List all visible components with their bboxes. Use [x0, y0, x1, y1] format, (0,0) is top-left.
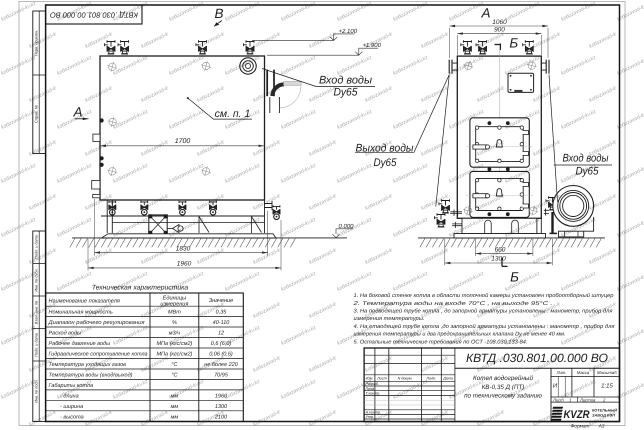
svg-text:Гидравлическое сопротивление к: Гидравлическое сопротивление котла [49, 352, 148, 358]
svg-text:Листов: Листов [579, 397, 596, 402]
svg-text:Габариты котла: Габариты котла [49, 382, 94, 389]
svg-text:Перв. примен.: Перв. примен. [33, 30, 38, 57]
svg-text:И: И [553, 383, 558, 390]
svg-text:0,6 (6,0): 0,6 (6,0) [211, 341, 232, 347]
svg-text:Б: Б [510, 270, 519, 285]
svg-text:КВ-0,35 Д (ПТ): КВ-0,35 Д (ПТ) [482, 384, 525, 391]
svg-text:1300: 1300 [491, 256, 506, 263]
svg-text:4. На отводящей трубе котла ,: 4. На отводящей трубе котла ,до запорной… [354, 323, 615, 330]
svg-text:5. Остальные технические треб: 5. Остальные технические требования по О… [354, 338, 528, 345]
svg-text:м3/ч: м3/ч [169, 331, 180, 337]
svg-text:Подп.: Подп. [426, 377, 436, 381]
svg-text:1:15: 1:15 [601, 383, 613, 390]
svg-text:измерения температуры и два пр: измерения температуры и два предохраните… [354, 332, 566, 338]
svg-text:1960: 1960 [177, 261, 192, 268]
svg-text:Масса: Масса [577, 370, 590, 375]
svg-text:А3: А3 [598, 424, 605, 430]
svg-text:Рабочее давление воды: Рабочее давление воды [49, 340, 111, 347]
svg-text:Dy65: Dy65 [576, 166, 600, 178]
svg-text:МПа (кгс/см2): МПа (кгс/см2) [156, 352, 192, 358]
svg-text:Инв. № подл.: Инв. № подл. [34, 379, 38, 403]
svg-text:0.000: 0.000 [338, 223, 354, 230]
svg-text:А: А [72, 105, 82, 120]
svg-text:12: 12 [218, 331, 224, 337]
svg-text:Наименование показателя: Наименование показателя [49, 299, 120, 305]
svg-text:2100: 2100 [214, 414, 228, 420]
svg-text:мм: мм [171, 404, 179, 410]
svg-text:2. Температура воды на входе: 2. Температура воды на входе 70°С , на в… [352, 301, 552, 307]
svg-text:°С: °С [171, 372, 177, 378]
svg-text:Вход воды: Вход воды [319, 75, 372, 87]
svg-text:Лист: Лист [376, 377, 387, 381]
svg-text:Расход воды: Расход воды [49, 331, 82, 337]
svg-text:Температура уходящих газов: Температура уходящих газов [49, 362, 127, 368]
svg-text:1830: 1830 [176, 245, 191, 252]
svg-text:Разраб.: Разраб. [366, 382, 379, 386]
svg-text:Единицы: Единицы [163, 294, 186, 301]
svg-text:Дата: Дата [442, 377, 453, 381]
svg-text:мм: мм [171, 414, 179, 420]
svg-text:3. На подводящей трубе котла: 3. На подводящей трубе котла , до запорн… [354, 308, 613, 315]
svg-text:Справ. №: Справ. № [33, 104, 38, 123]
svg-text:Лист: Лист [552, 397, 564, 402]
svg-text:Лит.: Лит. [556, 370, 567, 375]
svg-text:Значение: Значение [209, 298, 234, 304]
svg-text:1300: 1300 [215, 404, 228, 410]
svg-text:1. На боковой стенке котла в: 1. На боковой стенке котла в области топ… [354, 292, 614, 299]
svg-text:Инв. № дубл.: Инв. № дубл. [34, 268, 38, 291]
svg-text:Утв.: Утв. [366, 415, 374, 419]
svg-text:Диапазон рабочего регулировани: Диапазон рабочего регулирования [47, 319, 144, 326]
svg-text:1700: 1700 [175, 138, 191, 145]
svg-text:мм: мм [171, 393, 179, 399]
svg-text:Изм.: Изм. [366, 377, 374, 381]
svg-text:Выход воды: Выход воды [356, 143, 414, 155]
svg-text:ЗАВОД РЭП: ЗАВОД РЭП [592, 414, 616, 418]
svg-text:1960: 1960 [215, 393, 228, 399]
svg-text:Dy65: Dy65 [374, 157, 398, 169]
svg-text:измерения: измерения [160, 301, 188, 307]
svg-text:- ширина: - ширина [60, 404, 83, 410]
svg-text:Б: Б [509, 36, 518, 51]
svg-text:КОТЕЛЬНЫЙ: КОТЕЛЬНЫЙ [592, 408, 618, 413]
svg-text:1: 1 [569, 397, 571, 402]
svg-text:Взам. инв. №: Взам. инв. № [34, 301, 38, 324]
svg-text:Т.контр.: Т.контр. [366, 392, 381, 396]
svg-text:KVZR: KVZR [564, 409, 590, 421]
svg-text:измерения температуры.: измерения температуры. [354, 316, 425, 322]
svg-text:1060: 1060 [492, 19, 507, 26]
svg-text:Температура воды (вход/выход): Температура воды (вход/выход) [49, 372, 133, 378]
svg-text:- длина: - длина [60, 393, 79, 399]
svg-text:Вход воды: Вход воды [563, 153, 609, 165]
svg-text:0,06 (0,6): 0,06 (0,6) [209, 352, 233, 358]
svg-text:Формат: Формат [570, 424, 589, 430]
svg-text:Техническая характеристика: Техническая характеристика [92, 285, 188, 292]
svg-text:%: % [172, 320, 177, 326]
svg-text:°С: °С [171, 362, 177, 368]
svg-text:0,35: 0,35 [216, 310, 228, 316]
svg-text:не более 220: не более 220 [204, 361, 239, 368]
svg-text:см. п. 1: см. п. 1 [215, 108, 251, 120]
svg-text:Котел водогрейный: Котел водогрейный [473, 375, 533, 382]
svg-text:МПа (кгс/см2): МПа (кгс/см2) [156, 341, 192, 347]
svg-text:40-110: 40-110 [213, 320, 231, 326]
svg-text:900: 900 [494, 27, 505, 34]
svg-text:- высота: - высота [60, 414, 84, 420]
svg-text:КВТД .030.801.00.000 ВО: КВТД .030.801.00.000 ВО [466, 351, 608, 365]
svg-text:Пров.: Пров. [366, 387, 376, 391]
svg-text:660: 660 [495, 246, 506, 253]
svg-text:Подп. и дата: Подп. и дата [34, 333, 38, 357]
svg-text:70/95: 70/95 [214, 372, 229, 378]
svg-text:МВт: МВт [168, 310, 181, 316]
svg-text:В: В [214, 6, 223, 21]
svg-text:N докум.: N докум. [398, 377, 413, 381]
svg-text:КВТД .030.801.00.000 ВО: КВТД .030.801.00.000 ВО [50, 11, 138, 20]
svg-text:Подп. и дата: Подп. и дата [34, 235, 38, 259]
svg-text:А: А [480, 6, 490, 21]
svg-text:Номинальная мощность: Номинальная мощность [49, 310, 113, 316]
svg-text:Dy65: Dy65 [334, 87, 359, 99]
svg-text:Н.контр.: Н.контр. [366, 411, 382, 415]
svg-text:по техническому заданию: по техническому заданию [464, 393, 542, 400]
svg-text:Масштаб: Масштаб [597, 370, 617, 375]
